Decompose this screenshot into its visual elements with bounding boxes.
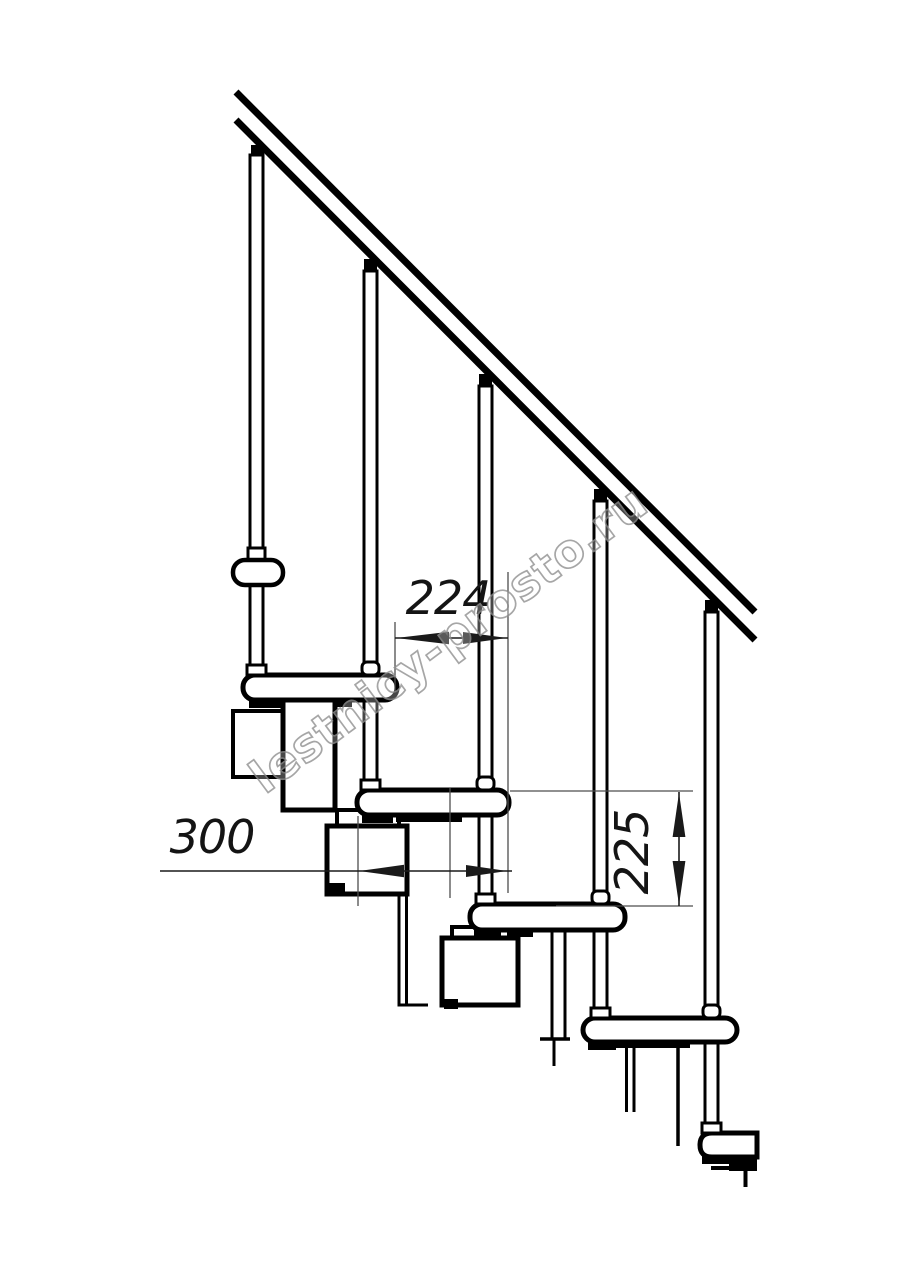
- arrow-up-icon: [673, 793, 686, 837]
- baluster-5-base: [702, 1123, 721, 1133]
- channel-2: [398, 894, 429, 1006]
- channel-4: [627, 1041, 679, 1146]
- floor-edge-collar: [233, 560, 283, 585]
- baluster-4-base: [591, 1008, 610, 1018]
- module-2-notch: [329, 883, 345, 893]
- handrail-top-line: [236, 92, 755, 612]
- baluster-5-sleeve: [703, 1005, 720, 1018]
- tread-3: [470, 904, 625, 930]
- baluster-3-base: [476, 894, 495, 904]
- channel-3: [540, 931, 570, 1066]
- dimension-rise: 225: [605, 792, 685, 906]
- handrail: [236, 92, 755, 640]
- tread-2: [357, 790, 509, 815]
- baluster-1-base: [247, 665, 266, 675]
- tread-5: [700, 1133, 757, 1157]
- arrow-down-icon: [673, 861, 686, 905]
- baluster-3-sleeve: [477, 777, 494, 790]
- module-3: [442, 938, 518, 1005]
- dimension-rise-label: 225: [605, 810, 659, 895]
- staircase-drawing-page: 224 300 225 lestnicy-prosto.ru: [0, 0, 914, 1280]
- baluster-2-base: [361, 780, 380, 790]
- module-3-notch: [444, 999, 458, 1009]
- baluster-1: [250, 145, 264, 675]
- dimension-tread-length-label: 300: [170, 810, 255, 864]
- handrail-bottom-line: [236, 120, 755, 640]
- baluster-4: [594, 489, 607, 1018]
- staircase-technical-drawing: 224 300 225 lestnicy-prosto.ru: [0, 0, 914, 1280]
- baluster-5: [705, 600, 718, 1133]
- tread-4: [583, 1018, 737, 1042]
